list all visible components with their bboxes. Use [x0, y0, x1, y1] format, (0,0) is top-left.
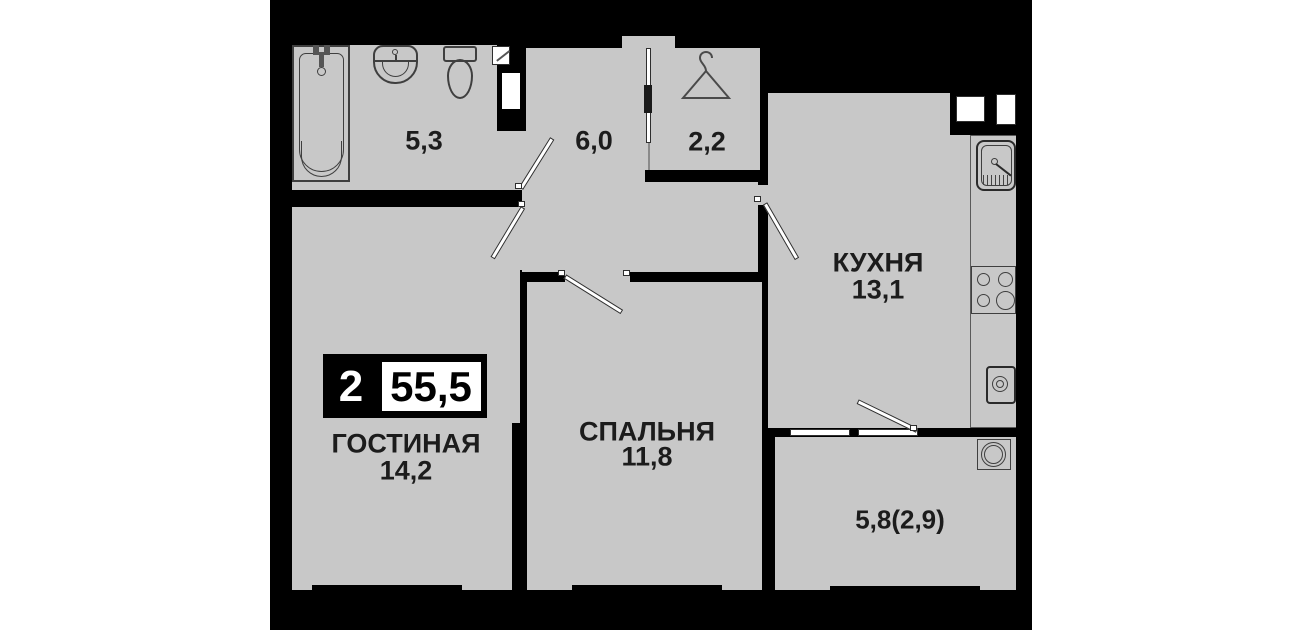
kitchen-sink-drainer [983, 175, 1011, 185]
balcony-area-label: 5,8(2,9) [855, 505, 945, 536]
hinge-tick [558, 270, 565, 276]
bathroom-area-label: 5,3 [405, 126, 443, 157]
living-area-label: 14,2 [380, 456, 433, 487]
wall-living-bedroom-thick [512, 423, 527, 590]
window-sill-bedroom [572, 585, 722, 592]
stove-icon [971, 266, 1016, 314]
faucet-knob [317, 67, 326, 76]
kitchen-area-label: 13,1 [852, 275, 905, 306]
badge-rooms-count: 2 [339, 362, 363, 412]
sink-faucet-stem [395, 55, 397, 61]
balcony-table-circle-inner [984, 445, 1003, 464]
hinge-tick [754, 196, 761, 202]
kitchen-sink-icon [976, 140, 1016, 191]
window-sill-living [312, 585, 462, 592]
washing-machine-icon [986, 366, 1016, 404]
balcony-window [790, 429, 850, 436]
corner-box-icon [492, 46, 510, 65]
floor-plan: 2 55,5 5,3 6,0 2,2 КУХНЯ 13,1 ГОСТИНАЯ 1… [0, 0, 1301, 630]
badge-total-area: 55,5 [390, 363, 472, 411]
burner [977, 273, 990, 286]
burner [998, 272, 1013, 287]
balcony-table-icon [977, 439, 1011, 470]
hinge-tick [515, 183, 522, 189]
balcony-door-window [858, 429, 918, 436]
faucet-handle [324, 45, 330, 55]
vent-shaft-opening [502, 73, 520, 109]
corner-box-line [496, 50, 510, 61]
hallway-area-label: 6,0 [575, 126, 613, 157]
burner [996, 291, 1015, 310]
drum-inner [996, 380, 1004, 388]
vent-box-icon [996, 94, 1016, 125]
hinge-tick [623, 270, 630, 276]
bathtub-arc [301, 141, 342, 177]
hinge-tick [910, 425, 917, 431]
hanger-icon [678, 50, 734, 106]
wardrobe-area-label: 2,2 [688, 127, 726, 158]
faucet-stem [319, 52, 324, 67]
bedroom-area-label: 11,8 [621, 442, 672, 473]
window-sill-balcony [830, 586, 980, 594]
sink-bowl [382, 62, 409, 77]
vent-box-icon [956, 96, 985, 122]
bathtub-icon [292, 45, 350, 182]
hinge-tick [518, 201, 525, 207]
entrance-door-panel [644, 85, 652, 113]
burner [977, 294, 990, 307]
entrance-threshold [622, 36, 675, 48]
room-hallway-extension [645, 182, 758, 272]
